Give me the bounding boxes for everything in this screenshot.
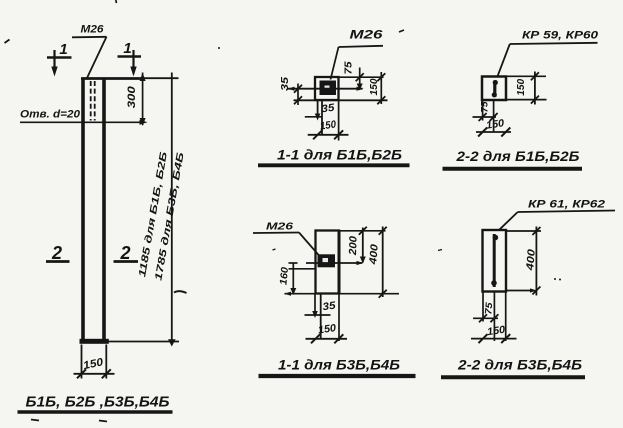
- svg-text:150: 150: [515, 79, 527, 96]
- svg-text:2-2 для Б1Б,Б2Б: 2-2 для Б1Б,Б2Б: [455, 148, 579, 164]
- svg-text:М26: М26: [81, 24, 105, 36]
- svg-text:150: 150: [369, 78, 380, 95]
- svg-text:75: 75: [344, 61, 355, 75]
- svg-text:М26: М26: [266, 221, 293, 233]
- svg-text:35: 35: [322, 300, 337, 314]
- svg-text:Б1Б, Б2Б ,Б3Б,Б4Б: Б1Б, Б2Б ,Б3Б,Б4Б: [26, 395, 170, 411]
- svg-text:35: 35: [280, 76, 291, 91]
- svg-text:150: 150: [82, 356, 105, 372]
- svg-text:400: 400: [367, 244, 381, 266]
- svg-text:2: 2: [119, 243, 130, 263]
- svg-text:35: 35: [321, 102, 336, 116]
- svg-text:150: 150: [485, 117, 505, 131]
- svg-text:2-2 для Б3Б,Б4Б: 2-2 для Б3Б,Б4Б: [457, 357, 582, 373]
- svg-text:75: 75: [479, 100, 489, 112]
- svg-text:М26: М26: [350, 30, 384, 42]
- svg-text:Отв. d=20: Отв. d=20: [20, 109, 81, 121]
- svg-text:400: 400: [524, 249, 538, 272]
- svg-text:150: 150: [486, 324, 506, 338]
- svg-text:300: 300: [126, 85, 138, 108]
- svg-text:150: 150: [317, 322, 337, 336]
- svg-text:2: 2: [51, 243, 62, 263]
- svg-text:1: 1: [59, 41, 67, 58]
- svg-text:1-1 для Б1Б,Б2Б: 1-1 для Б1Б,Б2Б: [277, 147, 402, 163]
- svg-text:160: 160: [278, 266, 291, 285]
- svg-text:75: 75: [483, 301, 495, 315]
- svg-text:1-1 для Б3Б,Б4Б: 1-1 для Б3Б,Б4Б: [278, 357, 400, 373]
- svg-text:КР 59, КР60: КР 59, КР60: [522, 30, 599, 42]
- svg-text:200: 200: [347, 236, 360, 257]
- svg-text:1: 1: [123, 40, 131, 57]
- svg-text:КР 61, КР62: КР 61, КР62: [528, 199, 605, 211]
